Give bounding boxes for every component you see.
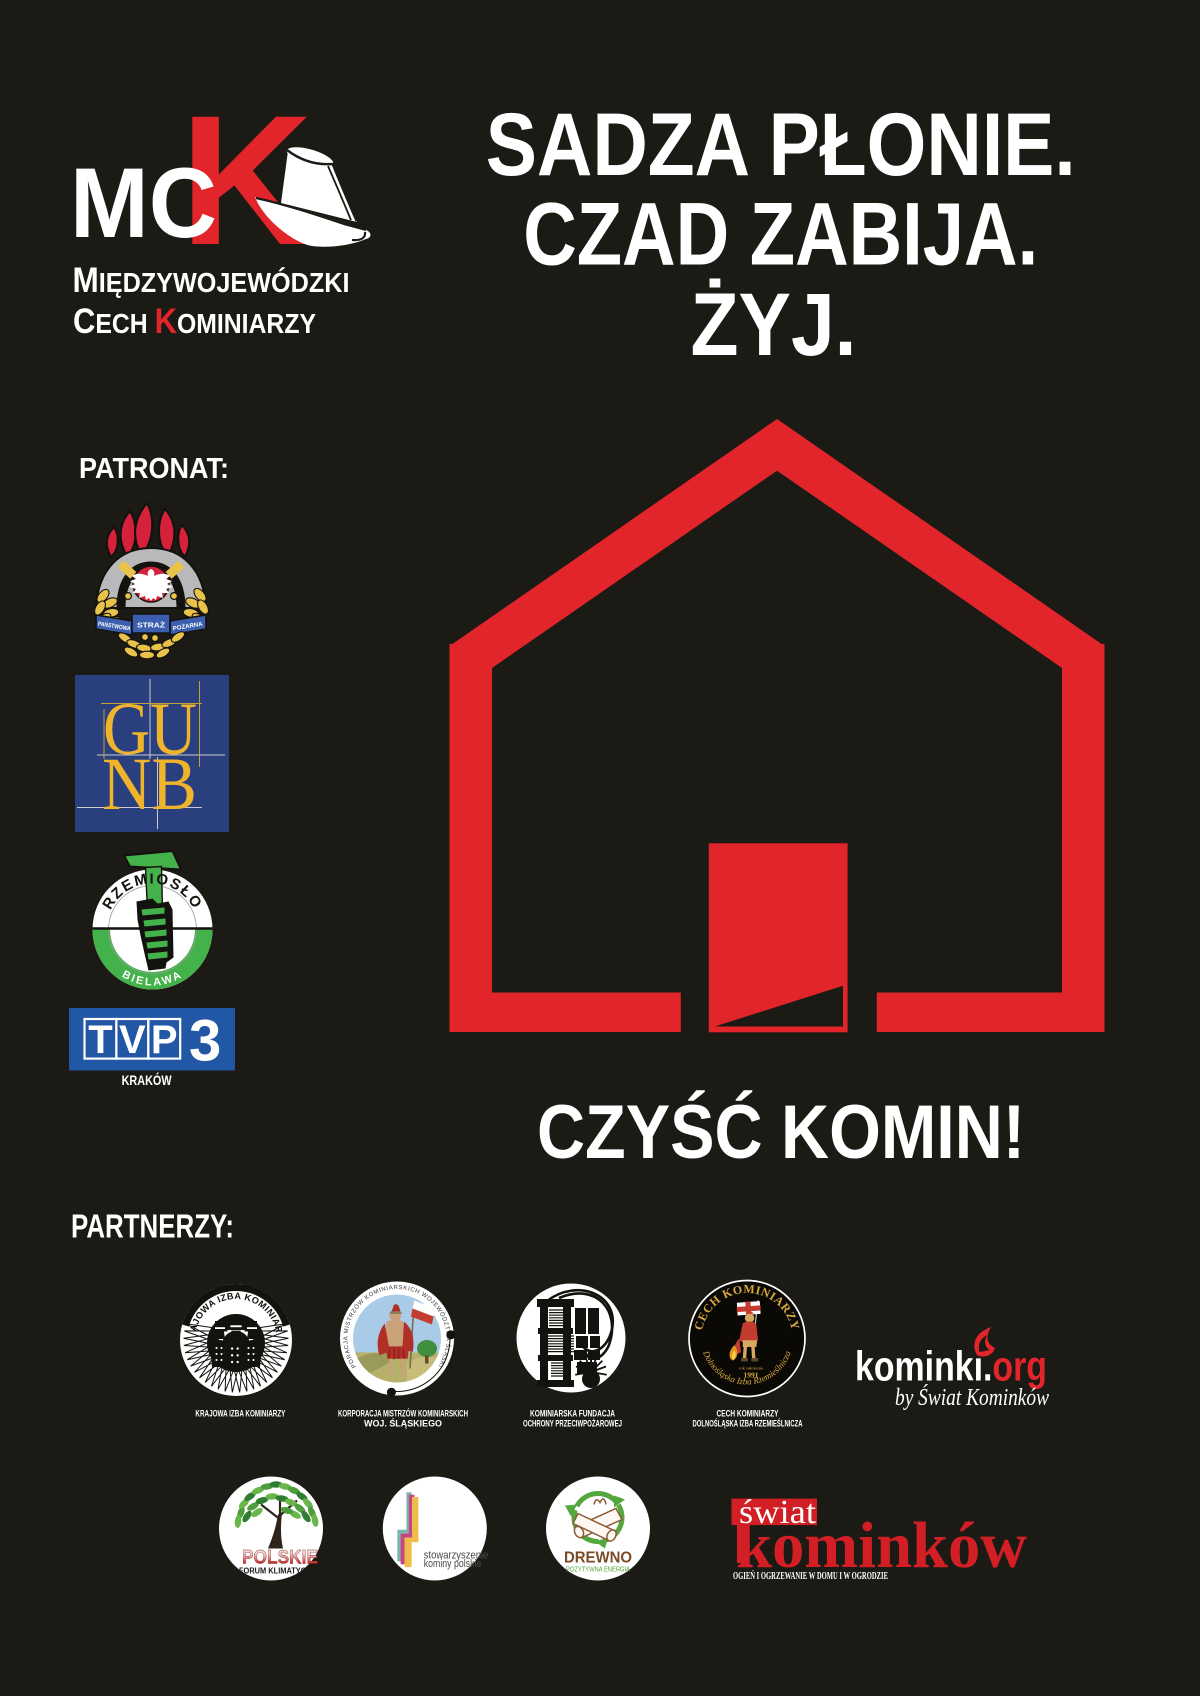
svg-text:OCHRONY PRZECIWPOŻAROWEJ: OCHRONY PRZECIWPOŻAROWEJ xyxy=(523,1419,622,1430)
svg-text:NB: NB xyxy=(102,743,197,826)
svg-text:KRAJOWA IZBA KOMINIARZY: KRAJOWA IZBA KOMINIARZY xyxy=(195,1409,285,1420)
svg-text:CECH KOMINIARZY: CECH KOMINIARZY xyxy=(73,302,316,341)
svg-text:świat: świat xyxy=(739,1494,817,1531)
svg-text:WOJ. ŚLĄSKIEGO: WOJ. ŚLĄSKIEGO xyxy=(364,1418,442,1430)
svg-text:POLSKIE: POLSKIE xyxy=(242,1548,318,1569)
svg-text:MIĘDZYWOJEWÓDZKI: MIĘDZYWOJEWÓDZKI xyxy=(73,261,350,300)
svg-text:kominkı.org: kominkı.org xyxy=(855,1343,1047,1390)
svg-text:FORUM KLIMATYCZNE: FORUM KLIMATYCZNE xyxy=(239,1567,322,1576)
svg-text:POZYTYWNA ENERGIA: POZYTYWNA ENERGIA xyxy=(566,1567,630,1574)
svg-text:CZAD ZABIJA.: CZAD ZABIJA. xyxy=(523,184,1038,284)
svg-text:kominy polskie: kominy polskie xyxy=(424,1558,482,1570)
svg-text:DOLNOŚLĄSKA IZBA RZEMIEŚLNICZA: DOLNOŚLĄSKA IZBA RZEMIEŚLNICZA xyxy=(693,1418,803,1430)
svg-text:by Świat Kominków: by Świat Kominków xyxy=(895,1384,1049,1411)
svg-text:MC: MC xyxy=(70,147,217,258)
svg-text:ŻYJ.: ŻYJ. xyxy=(691,274,857,374)
svg-text:PARTNERZY:: PARTNERZY: xyxy=(71,1208,234,1245)
svg-text:CZYŚĆ KOMIN!: CZYŚĆ KOMIN! xyxy=(537,1090,1025,1175)
svg-text:T: T xyxy=(88,1018,112,1062)
svg-text:KRAKÓW: KRAKÓW xyxy=(122,1071,173,1088)
svg-text:3: 3 xyxy=(189,1009,221,1074)
svg-text:DREWNO: DREWNO xyxy=(564,1550,632,1567)
svg-text:OGIEŃ I OGRZEWANIE W DOMU I W: OGIEŃ I OGRZEWANIE W DOMU I W OGRODZIE xyxy=(733,1570,888,1582)
svg-text:V: V xyxy=(119,1018,146,1062)
svg-text:PATRONAT:: PATRONAT: xyxy=(79,453,229,485)
svg-text:1991: 1991 xyxy=(744,1371,759,1380)
svg-text:STRAŻ: STRAŻ xyxy=(137,622,166,630)
svg-text:SADZA PŁONIE.: SADZA PŁONIE. xyxy=(486,94,1076,194)
svg-text:P: P xyxy=(151,1018,178,1062)
